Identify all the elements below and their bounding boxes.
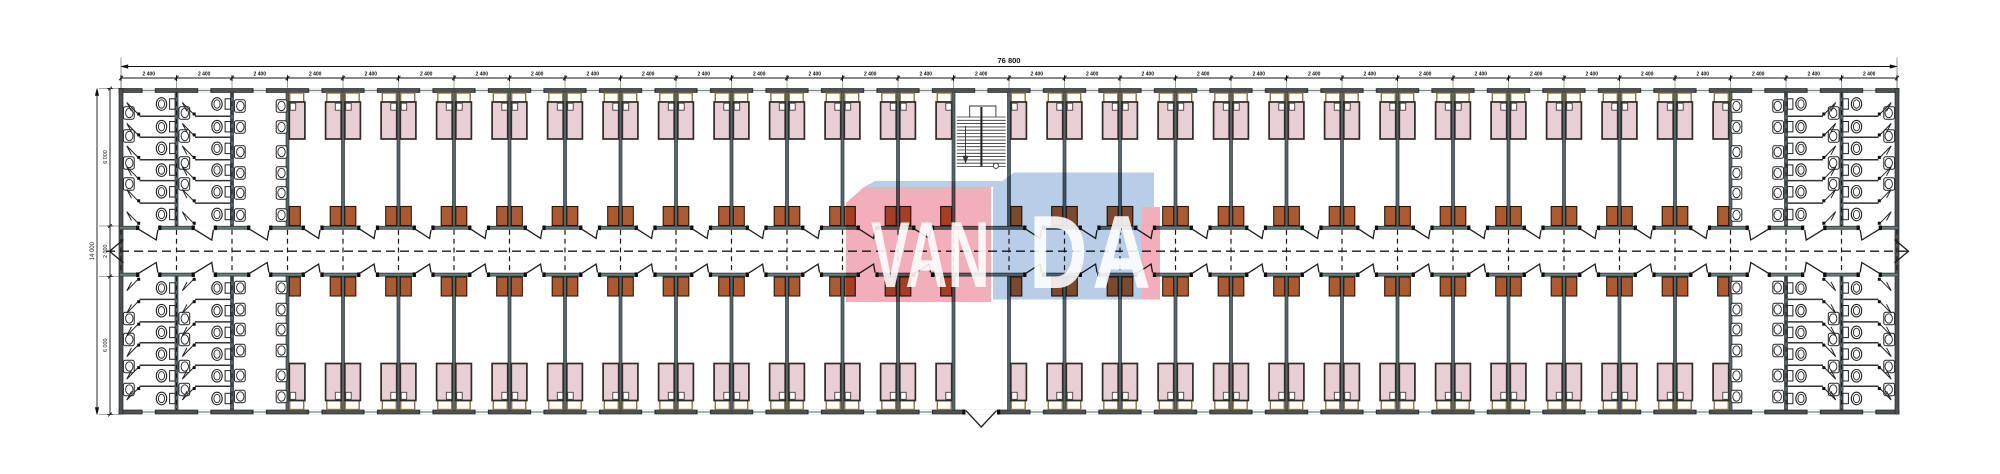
svg-text:2 400: 2 400 <box>198 71 211 77</box>
svg-text:2 400: 2 400 <box>1641 71 1654 77</box>
svg-text:2 400: 2 400 <box>1697 71 1710 77</box>
svg-text:2 400: 2 400 <box>1863 71 1876 77</box>
svg-text:2 400: 2 400 <box>1586 71 1599 77</box>
svg-text:VAN: VAN <box>871 202 990 308</box>
svg-text:2 400: 2 400 <box>309 71 322 77</box>
svg-text:14 000: 14 000 <box>90 241 96 260</box>
svg-text:2 400: 2 400 <box>920 71 933 77</box>
svg-text:DA: DA <box>1029 194 1156 310</box>
svg-text:2 400: 2 400 <box>809 71 822 77</box>
svg-text:2 400: 2 400 <box>365 71 378 77</box>
svg-text:2 400: 2 400 <box>1142 71 1155 77</box>
svg-text:2 400: 2 400 <box>143 71 156 77</box>
svg-text:2 400: 2 400 <box>698 71 711 77</box>
svg-text:2 400: 2 400 <box>1530 71 1543 77</box>
svg-text:2 400: 2 400 <box>1364 71 1377 77</box>
svg-text:2 400: 2 400 <box>1197 71 1210 77</box>
svg-text:6 000: 6 000 <box>103 339 109 353</box>
svg-text:2 400: 2 400 <box>1086 71 1099 77</box>
svg-text:2 400: 2 400 <box>642 71 655 77</box>
svg-text:2 400: 2 400 <box>1419 71 1432 77</box>
svg-text:2 400: 2 400 <box>420 71 433 77</box>
svg-text:2 400: 2 400 <box>1808 71 1821 77</box>
svg-text:76 800: 76 800 <box>998 56 1021 65</box>
svg-text:2 400: 2 400 <box>753 71 766 77</box>
svg-text:2 400: 2 400 <box>1253 71 1266 77</box>
svg-text:6 000: 6 000 <box>103 150 109 164</box>
svg-text:2 400: 2 400 <box>1308 71 1321 77</box>
svg-text:2 400: 2 400 <box>254 71 267 77</box>
svg-text:2 400: 2 400 <box>1752 71 1765 77</box>
svg-text:2 400: 2 400 <box>476 71 489 77</box>
svg-text:2 400: 2 400 <box>1475 71 1488 77</box>
svg-text:2 400: 2 400 <box>587 71 600 77</box>
svg-text:2 400: 2 400 <box>1031 71 1044 77</box>
svg-text:2 400: 2 400 <box>975 71 988 77</box>
svg-text:2 400: 2 400 <box>864 71 877 77</box>
svg-text:2 400: 2 400 <box>531 71 544 77</box>
